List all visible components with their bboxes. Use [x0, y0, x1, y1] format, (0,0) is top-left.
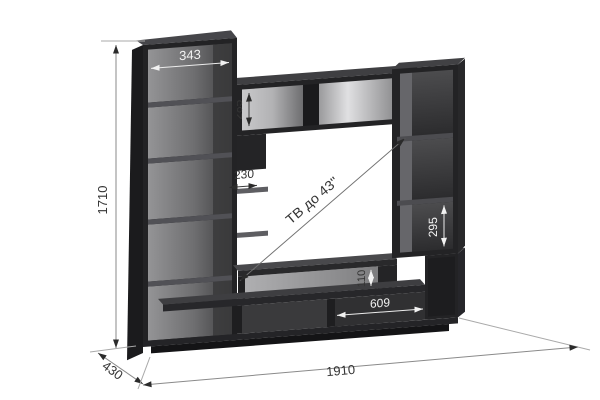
compartment-back: [412, 138, 453, 200]
dim-right-compartment-height-label: 295: [426, 216, 440, 237]
left-column-side-panel: [127, 45, 143, 360]
extension-line: [459, 318, 590, 350]
dim-shelf-gap-label: 110: [356, 269, 368, 287]
furniture-unit: 285 343 230: [127, 13, 465, 360]
dim-total-depth-label: 430: [99, 358, 125, 383]
right-column-side-panel: [458, 59, 465, 254]
top-bridge: 285: [231, 64, 420, 136]
base-divider: [232, 306, 242, 335]
bridge-divider: [303, 84, 319, 126]
inner-side-wall: [213, 43, 232, 335]
dim-spine-depth-label: 230: [234, 167, 254, 183]
inner-side-wall: [400, 73, 412, 253]
compartment-back: [412, 70, 453, 136]
dim-line-total-width: [143, 347, 578, 385]
base-divider: [327, 299, 335, 328]
shelf: [237, 231, 268, 238]
dim-bottom-compartment-width-label: 609: [370, 295, 390, 311]
shelf: [237, 187, 268, 194]
bridge-left-compartment: [242, 85, 303, 131]
cabinet-door: [428, 257, 455, 317]
furniture-diagram-canvas: 285 343 230: [0, 0, 600, 400]
spine-panel: [237, 134, 266, 171]
left-column: 343: [127, 30, 237, 360]
cabinet-side-panel: [458, 248, 465, 318]
right-column: 295: [392, 58, 465, 258]
dim-top-box-width-label: 343: [179, 47, 201, 64]
dim-total-height-label: 1710: [95, 186, 110, 215]
dim-total-width-label: 1910: [326, 362, 356, 379]
diagram-page: 285 343 230: [0, 0, 600, 400]
right-cabinet: [425, 248, 465, 320]
